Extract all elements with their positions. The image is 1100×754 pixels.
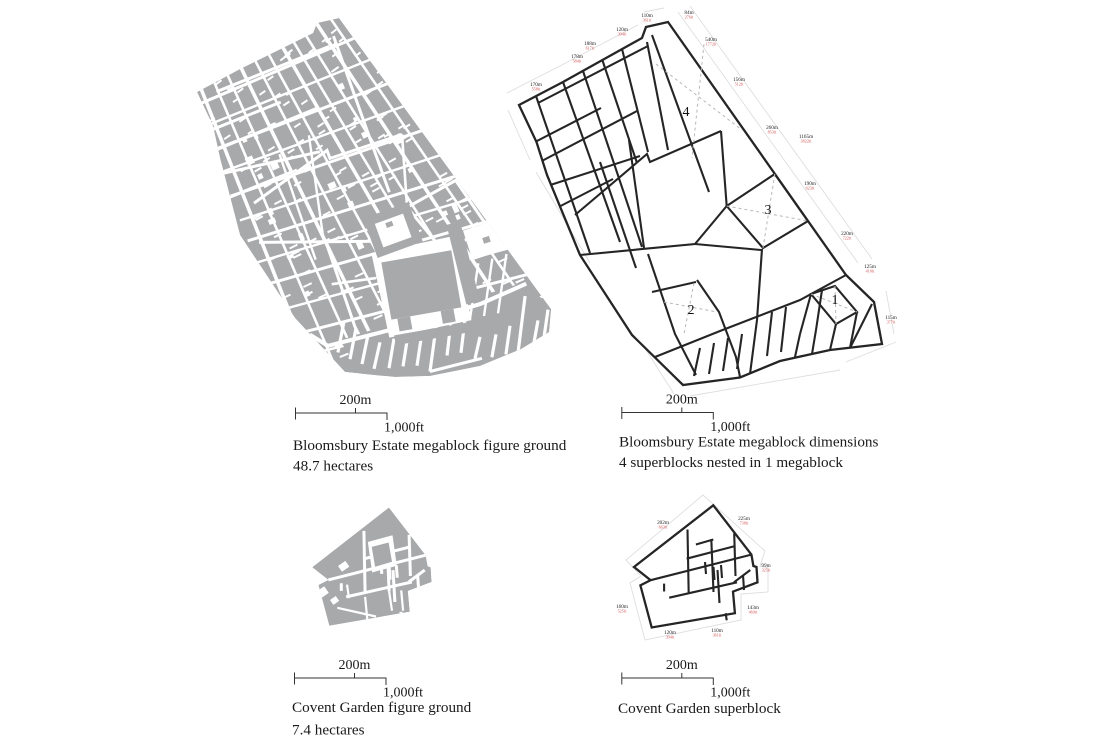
svg-text:2: 2 xyxy=(688,303,695,318)
svg-text:Bloomsbury Estate megablock di: Bloomsbury Estate megablock dimensions xyxy=(619,434,879,451)
svg-text:394ft: 394ft xyxy=(666,634,676,639)
svg-text:663ft: 663ft xyxy=(659,524,669,529)
svg-text:3822ft: 3822ft xyxy=(801,138,813,143)
svg-text:200m: 200m xyxy=(666,393,698,408)
svg-text:4 superblocks nested in 1 mega: 4 superblocks nested in 1 megablock xyxy=(619,454,843,471)
svg-text:361ft: 361ft xyxy=(643,17,653,22)
svg-text:853ft: 853ft xyxy=(768,129,778,134)
svg-text:394ft: 394ft xyxy=(618,31,628,36)
svg-text:1,000ft: 1,000ft xyxy=(384,421,424,436)
svg-text:325ft: 325ft xyxy=(762,567,772,572)
svg-text:469ft: 469ft xyxy=(749,609,759,614)
svg-text:48.7 hectares: 48.7 hectares xyxy=(293,458,373,475)
svg-text:558ft: 558ft xyxy=(532,86,542,91)
svg-text:584ft: 584ft xyxy=(573,58,583,63)
svg-text:200m: 200m xyxy=(666,658,698,673)
svg-text:738ft: 738ft xyxy=(740,520,750,525)
svg-text:623ft: 623ft xyxy=(806,185,816,190)
svg-text:7.4 hectares: 7.4 hectares xyxy=(292,722,365,739)
svg-text:Covent Garden superblock: Covent Garden superblock xyxy=(618,700,781,717)
svg-text:1,000ft: 1,000ft xyxy=(710,686,750,701)
svg-text:512ft: 512ft xyxy=(735,81,745,86)
svg-text:1772ft: 1772ft xyxy=(706,41,718,46)
svg-text:Covent Garden figure ground: Covent Garden figure ground xyxy=(292,699,472,716)
svg-text:4: 4 xyxy=(683,105,690,120)
svg-text:361ft: 361ft xyxy=(713,632,723,637)
svg-text:377ft: 377ft xyxy=(887,319,897,324)
svg-text:617ft: 617ft xyxy=(586,45,596,50)
svg-text:3: 3 xyxy=(765,203,772,218)
svg-text:525ft: 525ft xyxy=(618,608,628,613)
svg-text:410ft: 410ft xyxy=(866,268,876,273)
svg-text:Bloomsbury Estate megablock fi: Bloomsbury Estate megablock figure groun… xyxy=(293,437,567,454)
svg-text:1: 1 xyxy=(832,293,839,308)
svg-text:200m: 200m xyxy=(340,393,372,408)
svg-text:722ft: 722ft xyxy=(843,235,853,240)
svg-text:200m: 200m xyxy=(339,658,371,673)
svg-text:276ft: 276ft xyxy=(685,14,695,19)
